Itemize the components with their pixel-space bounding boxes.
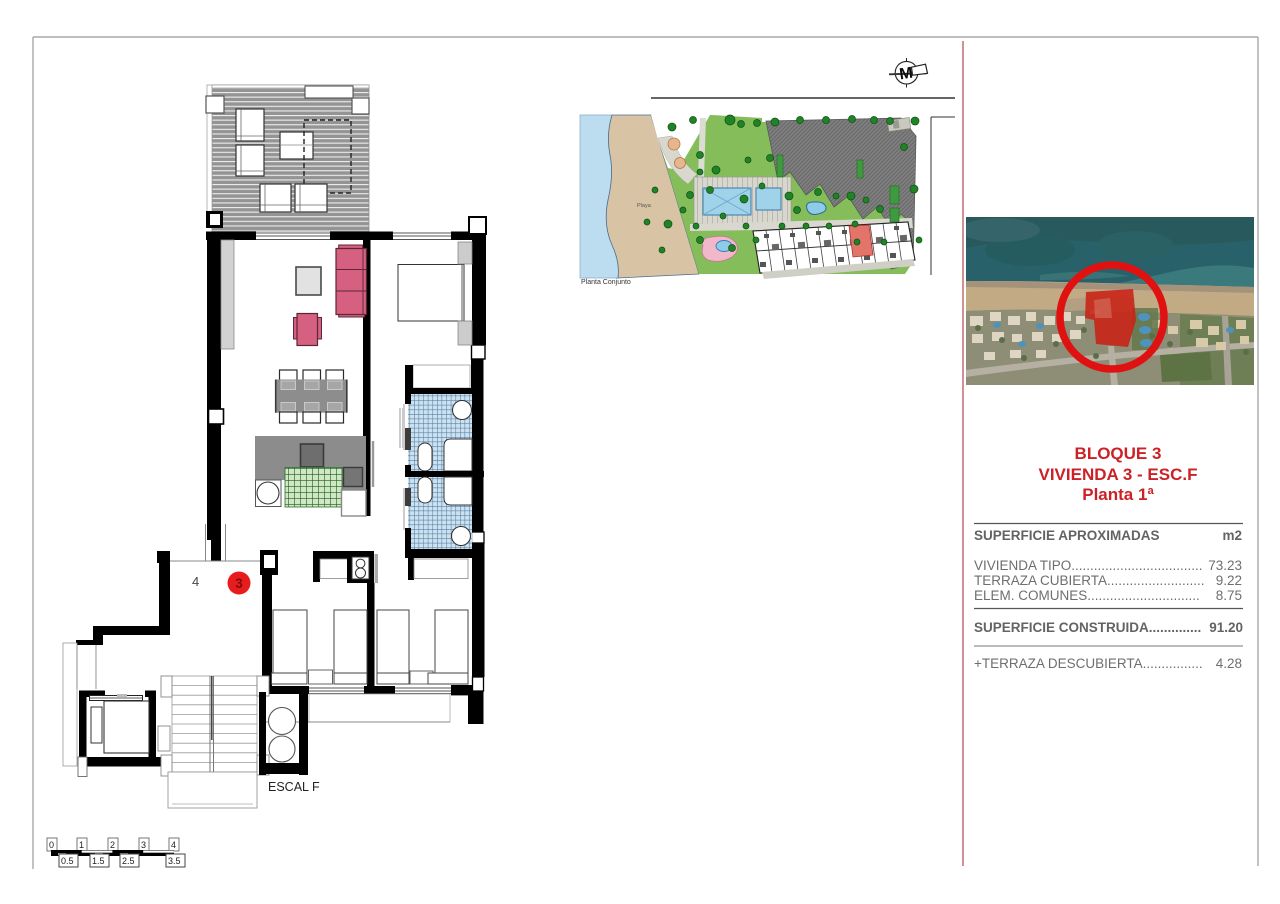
svg-text:0.5: 0.5 <box>61 856 74 866</box>
svg-text:2: 2 <box>110 840 115 850</box>
svg-text:4: 4 <box>171 840 176 850</box>
svg-text:Playa: Playa <box>637 203 652 209</box>
svg-text:0: 0 <box>49 840 54 850</box>
svg-text:1: 1 <box>79 840 84 850</box>
svg-text:4.28: 4.28 <box>1216 656 1242 671</box>
svg-text:Planta Conjunto: Planta Conjunto <box>581 279 631 286</box>
svg-text:ELEM. COMUNES.................: ELEM. COMUNES...........................… <box>974 588 1200 603</box>
svg-text:3: 3 <box>235 576 243 591</box>
svg-text:BLOQUE 3: BLOQUE 3 <box>1075 444 1162 463</box>
svg-text:73.23: 73.23 <box>1208 558 1242 573</box>
svg-text:2.5: 2.5 <box>122 856 135 866</box>
svg-text:8.75: 8.75 <box>1216 588 1242 603</box>
svg-text:9.22: 9.22 <box>1216 573 1242 588</box>
svg-text:+TERRAZA DESCUBIERTA..........: +TERRAZA DESCUBIERTA................ <box>974 656 1203 671</box>
svg-text:91.20: 91.20 <box>1209 620 1243 635</box>
svg-text:VIVIENDA 3 - ESC.F: VIVIENDA 3 - ESC.F <box>1038 465 1197 484</box>
svg-text:m2: m2 <box>1222 528 1242 543</box>
svg-text:3.5: 3.5 <box>168 856 181 866</box>
svg-text:SUPERFICIE APROXIMADAS: SUPERFICIE APROXIMADAS <box>974 528 1160 543</box>
svg-text:Planta 1ª: Planta 1ª <box>1082 485 1154 504</box>
svg-text:ESCAL F: ESCAL F <box>268 780 320 794</box>
svg-text:3: 3 <box>141 840 146 850</box>
svg-text:SUPERFICIE CONSTRUIDA.........: SUPERFICIE CONSTRUIDA.............. <box>974 620 1201 635</box>
svg-text:TERRAZA CUBIERTA..............: TERRAZA CUBIERTA........................… <box>974 573 1205 588</box>
svg-text:1.5: 1.5 <box>92 856 105 866</box>
svg-text:M: M <box>898 65 914 84</box>
svg-text:4: 4 <box>192 574 199 589</box>
svg-text:VIVIENDA TIPO.................: VIVIENDA TIPO...........................… <box>974 558 1203 573</box>
